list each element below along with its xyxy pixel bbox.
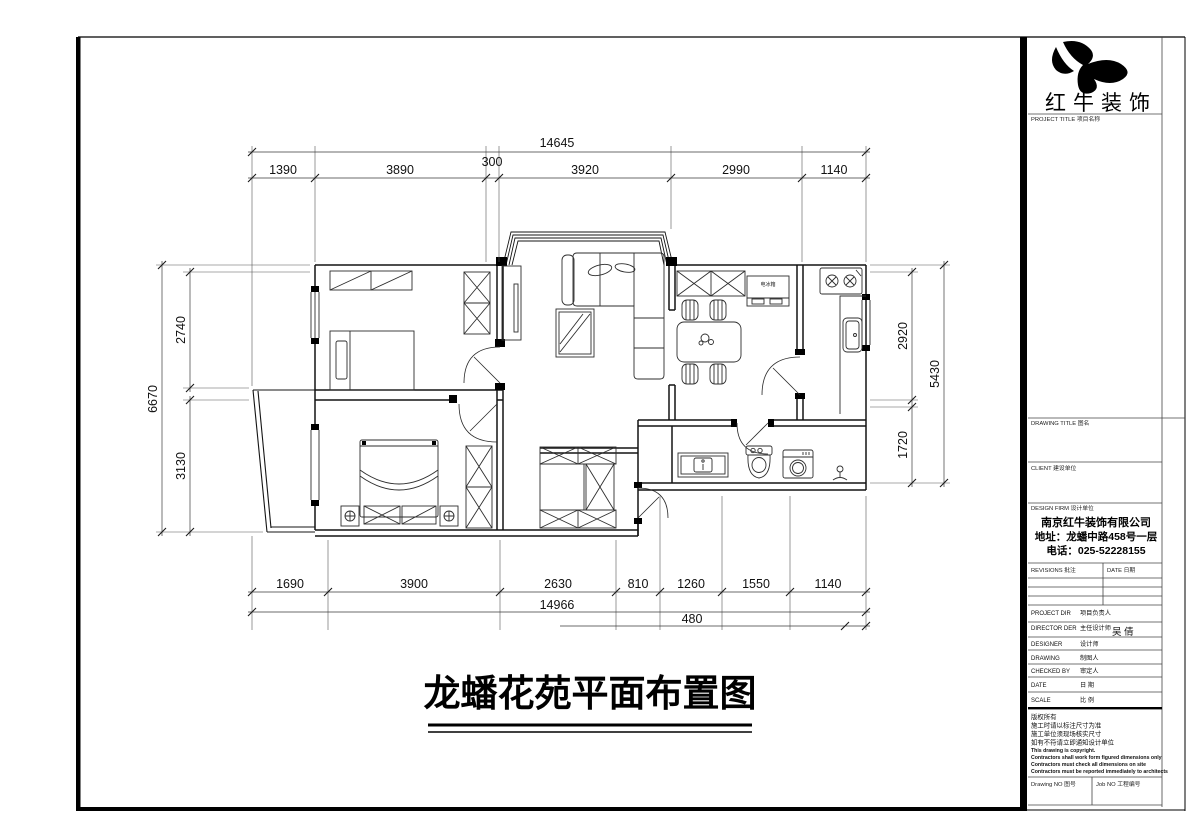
stove	[820, 268, 862, 294]
bedroom1-bed	[330, 331, 414, 390]
dim-left-1: 3130	[174, 452, 188, 480]
dim-bottom-6: 1140	[815, 577, 842, 591]
frame-left-bar	[76, 37, 81, 811]
dimension-ticks	[158, 148, 948, 630]
floor-plan-walls	[253, 232, 870, 536]
job-no-label: Job NO 工程编号	[1096, 780, 1141, 788]
copyright-en-2: Contractors must check all dimensions on…	[1031, 762, 1146, 768]
firm-phone: 电话：025-52228155	[1046, 544, 1145, 557]
revisions-label: REVISIONS 批注	[1031, 566, 1076, 574]
drawing-no-label: Drawing NO 图号	[1031, 780, 1076, 788]
company-name: 红牛装饰	[1045, 92, 1157, 115]
dim-bottom-5: 1550	[742, 577, 770, 591]
copyright-en-0: This drawing is copyright.	[1031, 748, 1096, 754]
firm-address: 地址：龙蟠中路458号一层	[1035, 530, 1158, 543]
nightstand-right	[440, 506, 458, 526]
company-logo: 红牛装饰	[1045, 41, 1157, 115]
dimension-extension-lines	[156, 146, 950, 630]
firm-name: 南京红牛装饰有限公司	[1041, 515, 1151, 529]
dim-left-total: 6670	[146, 385, 160, 413]
dim-bottom-4: 1260	[677, 577, 705, 591]
row-checked-zh: 审定人	[1080, 667, 1099, 675]
dining-table	[677, 322, 741, 362]
design-firm-label: DESIGN FIRM 设计单位	[1031, 504, 1094, 512]
row-designer-en: DESIGNER	[1031, 642, 1063, 648]
bay-window	[503, 232, 673, 265]
dimension-lines	[162, 152, 944, 626]
kitchen-door	[762, 357, 800, 395]
row-project-dir-zh: 项目负责人	[1080, 609, 1111, 617]
refrigerator	[747, 276, 789, 306]
dim-top-4: 2990	[722, 163, 750, 177]
dim-bottom-0: 1690	[276, 577, 304, 591]
bedroom1-window	[311, 292, 319, 338]
drawing-sheet: 红牛装饰 PROJECT TITLE 项目名称 DRAWING TITLE 图名…	[0, 0, 1200, 840]
sofa	[562, 253, 664, 379]
toilet	[746, 446, 772, 478]
frame-bottom-bar	[76, 807, 1027, 811]
row-date-zh: 日 期	[1080, 681, 1094, 689]
row-director-zh: 主任设计师	[1080, 624, 1111, 632]
shower-symbol	[833, 466, 847, 480]
bedroom1-wardrobe	[330, 271, 412, 290]
date-col-label: DATE 日期	[1107, 567, 1135, 574]
dining-cabinet	[677, 271, 745, 296]
storage-door	[638, 488, 668, 518]
bull-swoosh-icon	[1063, 41, 1128, 94]
row-checked-en: CHECKED BY	[1031, 669, 1070, 675]
master-bed	[360, 440, 438, 524]
dim-left-0: 2740	[174, 316, 188, 344]
row-scale-zh: 比 例	[1080, 696, 1094, 704]
client-label: CLIENT 建设单位	[1031, 464, 1077, 472]
drawing-title: 龙蟠花苑平面布置图	[424, 673, 757, 732]
row-designer-zh: 设计师	[1080, 640, 1099, 648]
row-drawing-en: DRAWING	[1031, 656, 1060, 662]
copyright-en-3: Contractors must be reported immediately…	[1031, 769, 1168, 775]
dim-bottom-extra: 480	[682, 612, 703, 626]
copyright-zh-0: 版权所有	[1031, 712, 1057, 721]
bedroom1-door	[464, 347, 500, 383]
master-wardrobe	[466, 446, 492, 528]
dim-top-2: 300	[482, 155, 503, 169]
dim-top-total: 14645	[540, 136, 575, 150]
nightstand-left	[341, 506, 359, 526]
dimension-text: 14645 1390 3890 300 3920 2990 1140 1690 …	[146, 136, 942, 626]
dim-top-3: 3920	[571, 163, 599, 177]
bathroom-vanity	[678, 453, 728, 477]
copyright-zh-3: 如有不符请立即通知设计单位	[1031, 738, 1115, 747]
master-door	[459, 404, 497, 442]
row-scale-en: SCALE	[1031, 698, 1051, 704]
washing-machine	[783, 450, 813, 478]
cad-canvas: 红牛装饰 PROJECT TITLE 项目名称 DRAWING TITLE 图名…	[0, 0, 1200, 840]
row-drawing-zh: 制图人	[1080, 654, 1099, 662]
dim-top-1: 3890	[386, 163, 414, 177]
copyright-zh-2: 施工单位须现场核实尺寸	[1031, 729, 1102, 738]
bedroom1-closet	[464, 272, 490, 334]
copyright-zh-1: 施工时请以标注尺寸为准	[1031, 721, 1102, 730]
balcony	[253, 390, 315, 532]
copyright-en-1: Contractors shall work form figured dime…	[1031, 755, 1162, 761]
dim-bottom-1: 3900	[400, 577, 428, 591]
dim-right-total: 5430	[928, 360, 942, 388]
doors	[459, 347, 800, 518]
coffee-table	[556, 309, 594, 357]
row-director-en: DIRECTOR DER	[1031, 626, 1077, 632]
master-balcony-door	[311, 430, 319, 500]
titleblock-divider-bar	[1020, 37, 1027, 811]
dim-bottom-total: 14966	[540, 598, 575, 612]
dim-bottom-2: 2630	[544, 577, 572, 591]
bathroom-door	[737, 423, 768, 454]
titleblock-labels: PROJECT TITLE 项目名称 DRAWING TITLE 图名 CLIE…	[1031, 115, 1168, 788]
row-project-dir-en: PROJECT DIR	[1031, 611, 1072, 617]
dim-right-1: 1720	[896, 431, 910, 459]
tv-cabinet	[502, 266, 521, 340]
fridge-label: 电冰箱	[760, 281, 775, 288]
director-signature: 吴 倩	[1112, 626, 1134, 638]
dim-bottom-3: 810	[628, 577, 649, 591]
plan-title-text: 龙蟠花苑平面布置图	[424, 673, 757, 714]
dim-top-5: 1140	[821, 163, 848, 177]
drawing-title-label: DRAWING TITLE 图名	[1031, 419, 1089, 427]
dim-right-0: 2920	[896, 322, 910, 350]
row-date-en: DATE	[1031, 683, 1047, 689]
project-title-label: PROJECT TITLE 项目名称	[1031, 115, 1100, 123]
study-cabinets	[540, 447, 616, 528]
dim-top-0: 1390	[269, 163, 297, 177]
